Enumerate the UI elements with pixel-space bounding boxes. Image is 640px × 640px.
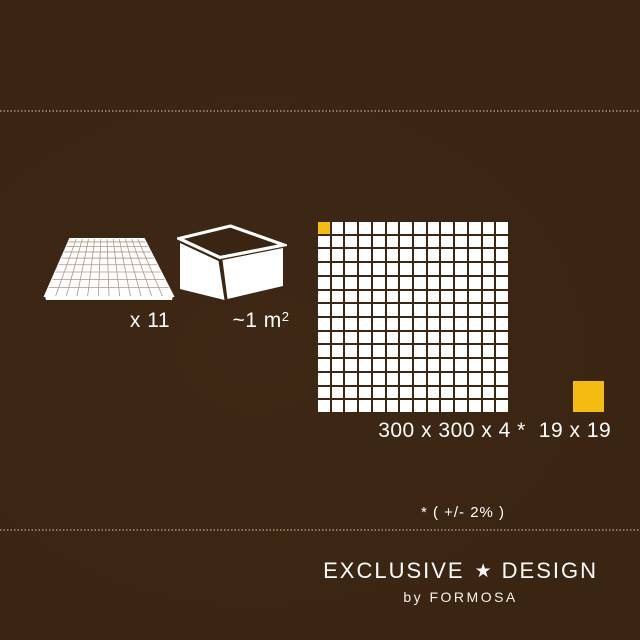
mosaic-tile	[359, 249, 371, 261]
mosaic-tile	[496, 236, 508, 248]
brand-title-left: EXCLUSIVE	[323, 558, 465, 584]
mosaic-tile	[496, 373, 508, 385]
mosaic-tile	[455, 249, 467, 261]
mosaic-tile	[345, 373, 357, 385]
mosaic-tile	[318, 263, 330, 275]
mosaic-tile	[345, 400, 357, 412]
mosaic-tile	[414, 318, 426, 330]
brand-title: EXCLUSIVE ★ DESIGN	[323, 558, 598, 584]
mosaic-tile	[373, 400, 385, 412]
mosaic-tile	[400, 387, 412, 399]
mosaic-tile	[387, 373, 399, 385]
mosaic-tile	[428, 373, 440, 385]
mosaic-tile	[496, 291, 508, 303]
mosaic-tile	[387, 222, 399, 234]
mosaic-tile	[469, 263, 481, 275]
mosaic-tile	[332, 277, 344, 289]
mosaic-tile	[345, 359, 357, 371]
mosaic-tile	[318, 291, 330, 303]
mosaic-tile	[359, 291, 371, 303]
mosaic-tile	[400, 291, 412, 303]
mosaic-tile	[441, 304, 453, 316]
mosaic-tile	[455, 236, 467, 248]
mosaic-tile	[318, 359, 330, 371]
mosaic-tile	[332, 345, 344, 357]
mosaic-tile	[469, 304, 481, 316]
sheet-count-label: x 11	[130, 310, 170, 331]
mosaic-tile	[469, 359, 481, 371]
mosaic-tile	[332, 236, 344, 248]
mosaic-tile	[496, 277, 508, 289]
mosaic-tile	[469, 318, 481, 330]
mosaic-tile	[483, 291, 495, 303]
mosaic-tile	[414, 304, 426, 316]
mosaic-tile	[441, 263, 453, 275]
mosaic-tile	[414, 236, 426, 248]
mosaic-tile	[345, 222, 357, 234]
mosaic-tile	[455, 291, 467, 303]
mosaic-tile	[359, 345, 371, 357]
mosaic-tile	[373, 249, 385, 261]
mosaic-tile	[483, 318, 495, 330]
mosaic-tile	[428, 318, 440, 330]
mosaic-tile	[469, 400, 481, 412]
mosaic-tile	[414, 359, 426, 371]
mosaic-tile	[441, 387, 453, 399]
mosaic-tile	[400, 318, 412, 330]
mosaic-tile	[318, 277, 330, 289]
mosaic-tile	[387, 400, 399, 412]
mosaic-tile	[332, 291, 344, 303]
mosaic-tile	[441, 373, 453, 385]
mosaic-tile	[332, 318, 344, 330]
mosaic-tile	[455, 359, 467, 371]
mosaic-tile	[345, 277, 357, 289]
mosaic-tile	[387, 304, 399, 316]
mosaic-tile	[455, 263, 467, 275]
mosaic-tile	[428, 263, 440, 275]
mosaic-tile	[483, 304, 495, 316]
tolerance-note: * ( +/- 2% )	[421, 504, 505, 521]
mosaic-tile	[332, 359, 344, 371]
star-icon: ★	[475, 560, 492, 583]
mosaic-tile	[496, 263, 508, 275]
mosaic-tile	[496, 345, 508, 357]
mosaic-tile	[496, 318, 508, 330]
mosaic-tile	[345, 236, 357, 248]
mosaic-tile	[483, 332, 495, 344]
brand-logo: EXCLUSIVE ★ DESIGN by FORMOSA	[323, 558, 598, 605]
mosaic-tile	[455, 304, 467, 316]
mosaic-tile	[400, 345, 412, 357]
mosaic-tile	[428, 249, 440, 261]
mosaic-tile	[359, 277, 371, 289]
mosaic-tile	[483, 277, 495, 289]
mosaic-tile	[387, 318, 399, 330]
mosaic-tile	[318, 304, 330, 316]
mosaic-tile	[441, 332, 453, 344]
mosaic-tile	[483, 387, 495, 399]
mosaic-accent-tile	[318, 222, 330, 234]
box-area-label-sup: 2	[282, 309, 290, 324]
mosaic-tile	[469, 345, 481, 357]
mosaic-tile	[373, 236, 385, 248]
mosaic-tile	[332, 263, 344, 275]
box-area-label: ~1 m2	[232, 310, 289, 331]
mosaic-tile	[428, 277, 440, 289]
mosaic-tile	[455, 373, 467, 385]
mosaic-tile	[318, 373, 330, 385]
mosaic-tile	[400, 263, 412, 275]
mosaic-tile	[483, 263, 495, 275]
mosaic-tile	[318, 400, 330, 412]
mosaic-tile	[400, 332, 412, 344]
mosaic-tile	[469, 387, 481, 399]
mosaic-tile	[373, 263, 385, 275]
sheet-size-label: 300 x 300 x 4 *	[378, 420, 526, 441]
mosaic-tile	[400, 277, 412, 289]
mosaic-tile	[455, 222, 467, 234]
mosaic-tile	[345, 291, 357, 303]
mosaic-tile	[318, 236, 330, 248]
mosaic-tile	[345, 345, 357, 357]
mosaic-tile	[469, 249, 481, 261]
mosaic-tile	[496, 222, 508, 234]
mosaic-tile	[455, 345, 467, 357]
mosaic-tile	[469, 236, 481, 248]
mosaic-tile	[373, 304, 385, 316]
mosaic-tile	[332, 400, 344, 412]
mosaic-tile	[359, 359, 371, 371]
mosaic-tile	[496, 387, 508, 399]
mosaic-tile	[387, 277, 399, 289]
mosaic-tile	[359, 222, 371, 234]
mosaic-tile	[400, 236, 412, 248]
mosaic-tile	[373, 359, 385, 371]
mosaic-tile	[483, 359, 495, 371]
mosaic-tile	[414, 332, 426, 344]
mosaic-tile	[441, 277, 453, 289]
mosaic-tile	[496, 304, 508, 316]
mosaic-tile	[332, 373, 344, 385]
mosaic-tile	[455, 400, 467, 412]
mosaic-tile	[441, 318, 453, 330]
mosaic-tile	[359, 400, 371, 412]
mosaic-sheet-icon	[43, 236, 175, 306]
mosaic-tile	[441, 291, 453, 303]
mosaic-tile	[387, 263, 399, 275]
mosaic-tile	[345, 304, 357, 316]
mosaic-tile	[428, 400, 440, 412]
mosaic-tile	[455, 387, 467, 399]
mosaic-tile	[441, 345, 453, 357]
mosaic-tile	[441, 222, 453, 234]
box-icon	[177, 223, 287, 303]
mosaic-tile	[414, 291, 426, 303]
mosaic-tile	[414, 400, 426, 412]
mosaic-tile	[496, 359, 508, 371]
mosaic-tile	[414, 345, 426, 357]
mosaic-tile	[345, 249, 357, 261]
mosaic-tile	[400, 249, 412, 261]
mosaic-grid	[318, 222, 508, 412]
mosaic-tile	[345, 332, 357, 344]
mosaic-tile	[428, 359, 440, 371]
mosaic-tile	[387, 359, 399, 371]
mosaic-tile	[373, 291, 385, 303]
mosaic-tile	[483, 222, 495, 234]
mosaic-tile	[400, 222, 412, 234]
mosaic-tile	[428, 222, 440, 234]
mosaic-tile	[455, 332, 467, 344]
mosaic-tile	[359, 318, 371, 330]
mosaic-tile	[373, 387, 385, 399]
bottom-dotted-divider	[0, 529, 640, 531]
mosaic-tile	[469, 291, 481, 303]
mosaic-tile	[373, 332, 385, 344]
mosaic-tile	[387, 387, 399, 399]
mosaic-tile	[455, 277, 467, 289]
mosaic-tile	[483, 373, 495, 385]
mosaic-tile	[483, 236, 495, 248]
mosaic-tile	[428, 304, 440, 316]
mosaic-tile	[400, 400, 412, 412]
mosaic-tile	[387, 236, 399, 248]
mosaic-tile	[455, 318, 467, 330]
mosaic-tile	[318, 249, 330, 261]
mosaic-tile	[414, 249, 426, 261]
mosaic-tile	[428, 236, 440, 248]
mosaic-tile	[387, 332, 399, 344]
mosaic-tile	[318, 332, 330, 344]
mosaic-tile	[387, 291, 399, 303]
mosaic-tile	[483, 249, 495, 261]
mosaic-tile	[496, 249, 508, 261]
mosaic-tile	[332, 304, 344, 316]
mosaic-tile	[373, 318, 385, 330]
mosaic-tile	[373, 277, 385, 289]
mosaic-tile	[332, 387, 344, 399]
mosaic-tile	[483, 400, 495, 412]
mosaic-tile	[359, 387, 371, 399]
mosaic-tile	[469, 222, 481, 234]
mosaic-tile	[428, 291, 440, 303]
mosaic-tile	[387, 345, 399, 357]
mosaic-tile	[359, 373, 371, 385]
mosaic-tile	[332, 249, 344, 261]
mosaic-tile	[414, 277, 426, 289]
mosaic-tile	[428, 332, 440, 344]
mosaic-tile	[318, 318, 330, 330]
mosaic-tile	[359, 332, 371, 344]
mosaic-tile	[414, 373, 426, 385]
mosaic-tile	[345, 387, 357, 399]
mosaic-tile	[400, 359, 412, 371]
mosaic-tile	[359, 263, 371, 275]
mosaic-tile	[496, 400, 508, 412]
mosaic-tile	[483, 345, 495, 357]
mosaic-tile	[373, 345, 385, 357]
mosaic-tile	[400, 373, 412, 385]
mosaic-tile	[428, 345, 440, 357]
tile-spec-infographic: x 11 ~1 m2 300 x 300 x 4 * 19 x 19 * ( +…	[0, 0, 640, 640]
mosaic-tile	[332, 332, 344, 344]
mosaic-tile	[441, 400, 453, 412]
mosaic-tile	[387, 249, 399, 261]
mosaic-tile	[428, 387, 440, 399]
mosaic-tile	[400, 304, 412, 316]
mosaic-tile	[373, 222, 385, 234]
mosaic-tile	[332, 222, 344, 234]
mosaic-tile	[441, 359, 453, 371]
mosaic-tile	[414, 387, 426, 399]
mosaic-tile	[469, 373, 481, 385]
mosaic-tile	[345, 318, 357, 330]
mosaic-tile	[441, 249, 453, 261]
mosaic-tile	[359, 236, 371, 248]
mosaic-tile	[318, 345, 330, 357]
mosaic-tile	[373, 373, 385, 385]
mosaic-tile	[496, 332, 508, 344]
mosaic-tile	[469, 332, 481, 344]
mosaic-tile	[469, 277, 481, 289]
mosaic-tile	[441, 236, 453, 248]
single-chip-swatch	[573, 381, 604, 412]
mosaic-tile	[345, 263, 357, 275]
brand-title-right: DESIGN	[502, 558, 598, 584]
box-area-label-base: ~1 m	[232, 309, 281, 332]
mosaic-tile	[414, 263, 426, 275]
mosaic-tile	[359, 304, 371, 316]
brand-subtitle: by FORMOSA	[323, 589, 598, 605]
top-dotted-divider	[0, 110, 640, 112]
chip-size-label: 19 x 19	[539, 420, 611, 441]
mosaic-tile	[318, 387, 330, 399]
mosaic-tile	[414, 222, 426, 234]
